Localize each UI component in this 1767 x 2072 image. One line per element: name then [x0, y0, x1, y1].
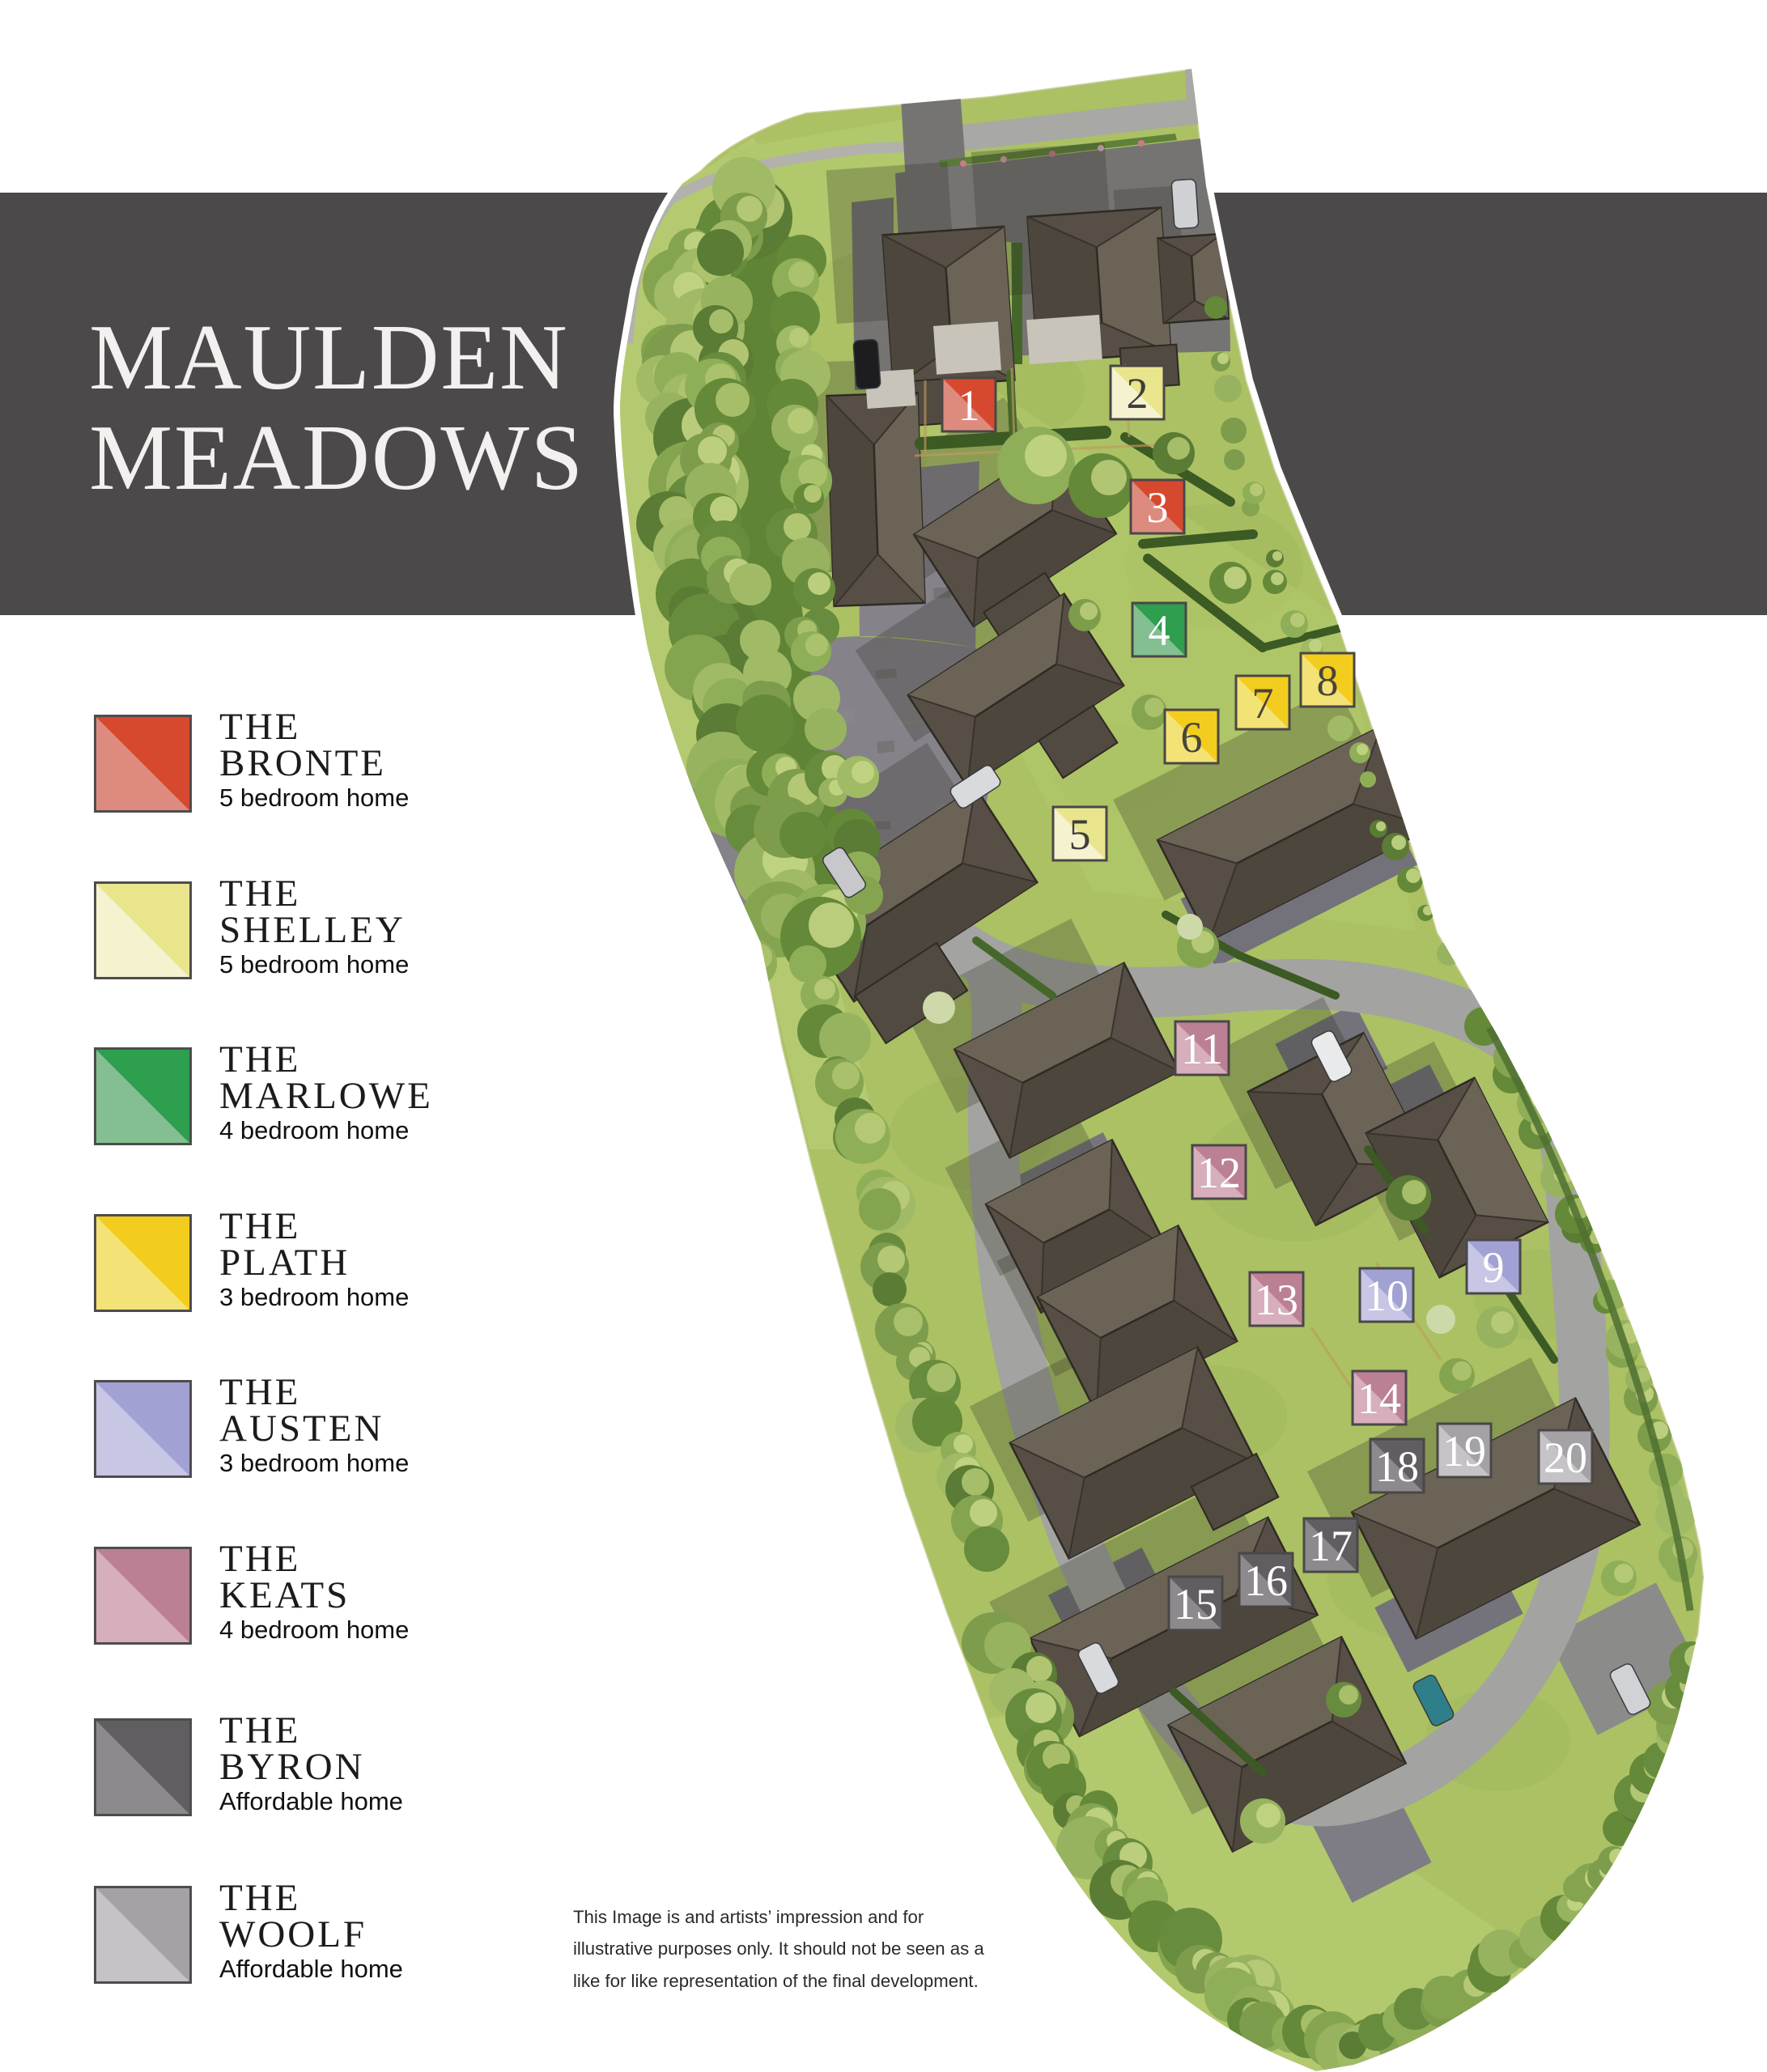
svg-text:3: 3 [1147, 483, 1169, 532]
svg-text:18: 18 [1375, 1442, 1419, 1491]
svg-text:17: 17 [1309, 1522, 1353, 1570]
svg-text:8: 8 [1317, 656, 1339, 705]
svg-text:15: 15 [1174, 1580, 1217, 1628]
svg-text:1: 1 [958, 381, 980, 430]
svg-text:2: 2 [1127, 369, 1149, 418]
svg-text:13: 13 [1255, 1276, 1298, 1324]
svg-text:16: 16 [1244, 1556, 1288, 1605]
svg-text:11: 11 [1181, 1025, 1223, 1073]
svg-text:7: 7 [1252, 679, 1274, 728]
svg-text:20: 20 [1544, 1433, 1587, 1482]
svg-text:9: 9 [1483, 1243, 1505, 1292]
svg-text:4: 4 [1149, 606, 1170, 655]
svg-text:6: 6 [1181, 713, 1203, 762]
svg-text:10: 10 [1365, 1272, 1408, 1320]
svg-text:12: 12 [1197, 1149, 1241, 1197]
svg-text:19: 19 [1442, 1427, 1486, 1475]
svg-text:14: 14 [1357, 1374, 1401, 1423]
svg-text:5: 5 [1069, 810, 1091, 859]
